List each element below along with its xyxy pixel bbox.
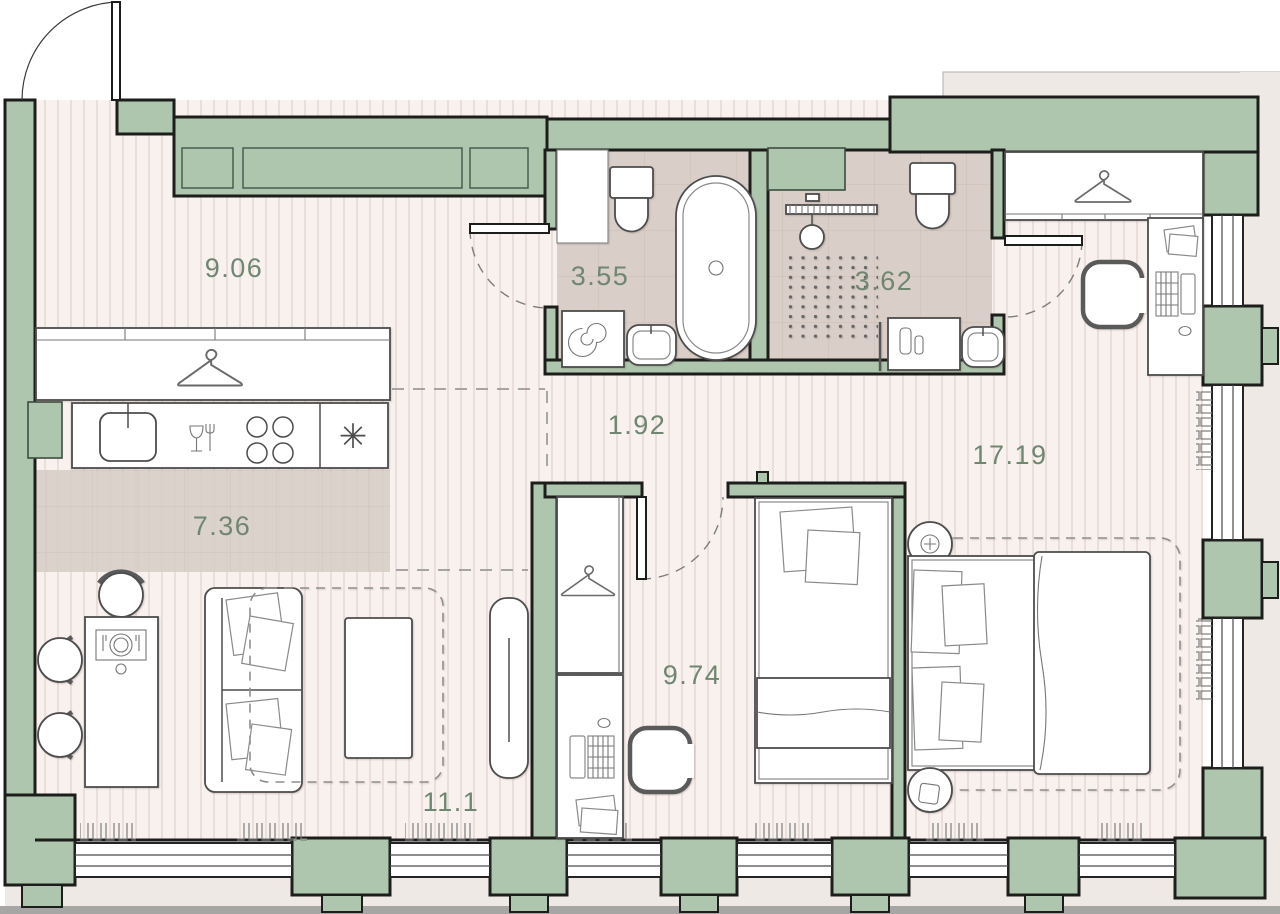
wall-bathrooms-top — [547, 119, 890, 150]
bathtub — [676, 176, 756, 360]
sofa — [205, 588, 302, 792]
pilaster-bottom-2 — [490, 838, 567, 895]
pilaster-right-2-tab — [1262, 562, 1278, 598]
pillow — [805, 530, 860, 585]
wall-entry-corner — [117, 100, 174, 134]
console-shelf — [490, 598, 528, 778]
desk — [557, 675, 623, 838]
toilet — [610, 167, 653, 232]
dining-chair — [38, 713, 82, 757]
radiator-vertical — [1196, 390, 1212, 470]
washing-machine — [562, 311, 624, 367]
window-bottom-6 — [1079, 843, 1175, 877]
papers-icon — [580, 808, 618, 834]
radiator — [752, 823, 814, 841]
single-bed — [755, 498, 892, 783]
pilaster-right-1-tab — [1262, 328, 1278, 364]
pilaster-bottom-5 — [1008, 838, 1079, 895]
window-bottom-3 — [567, 843, 661, 877]
wall-living-bedroom — [532, 483, 557, 838]
wall-bedroom2-top-left — [545, 483, 642, 497]
exterior-top-right — [943, 72, 1280, 99]
double-bed — [908, 552, 1150, 774]
entry-closet — [36, 328, 390, 400]
room-label-bedroom-second: 9.74 — [663, 660, 722, 690]
pillow — [939, 682, 984, 742]
pilaster-right-2 — [1203, 540, 1262, 618]
wall-cabinet-2 — [243, 148, 462, 188]
wall-bedrooms-divider — [892, 497, 905, 838]
room-label-hallway: 1.92 — [608, 410, 667, 440]
wall-tab — [757, 472, 768, 483]
desk-chair — [630, 728, 694, 792]
entry-door — [22, 2, 120, 100]
wall-right-bottom-corner — [1203, 768, 1262, 846]
wall-top-right — [890, 97, 1258, 152]
pilaster-b3-tab — [680, 895, 718, 912]
papers-icon — [1168, 234, 1198, 256]
pilaster-bl-tab — [22, 885, 62, 907]
wall-cabinet-3 — [470, 148, 528, 188]
room-label-kitchen: 9.06 — [205, 253, 264, 283]
wall-shower-right-a — [992, 150, 1004, 238]
floor-plan: ✳ — [0, 0, 1280, 914]
laptop-icon — [570, 736, 614, 778]
shower-sink — [962, 327, 1004, 367]
pilaster-bottom-4 — [832, 838, 909, 895]
pilaster-bottom-right-corner — [1175, 838, 1265, 898]
bathroom-sink — [627, 325, 676, 365]
window-bottom-1 — [75, 843, 292, 877]
duct-kitchen — [28, 402, 62, 458]
window-right-3 — [1212, 618, 1243, 768]
desk-chair — [1083, 262, 1146, 327]
pilaster-b2-tab — [510, 895, 548, 912]
pilaster-b5-tab — [1025, 895, 1063, 912]
dining-chair — [38, 638, 82, 682]
blanket — [757, 678, 890, 748]
wall-cabinet-1 — [182, 148, 233, 188]
bathroom-cabinet — [557, 150, 608, 243]
wardrobe — [557, 497, 623, 673]
room-label-bathroom: 3.55 — [571, 261, 630, 291]
ground-line — [0, 906, 1280, 914]
radiator — [237, 823, 307, 841]
toilet — [910, 163, 955, 229]
kitchen-furniture: ✳ — [36, 328, 390, 468]
desk — [1148, 218, 1203, 375]
pilaster-bottom-3 — [661, 838, 737, 895]
window-bottom-4 — [737, 843, 832, 877]
kitchen-counter: ✳ — [72, 403, 388, 468]
blanket — [1034, 552, 1150, 774]
pilaster-right-1 — [1203, 306, 1262, 385]
wall-bathroom-left-a — [545, 150, 557, 229]
wardrobe — [1005, 152, 1203, 220]
nightstand-bottom — [908, 768, 952, 812]
sofa-pillow — [246, 724, 292, 775]
window-bottom-2 — [390, 843, 490, 877]
coffee-table — [345, 618, 412, 758]
window-bottom-5 — [909, 843, 1008, 877]
radiator — [80, 823, 136, 841]
duct-shaft — [768, 148, 845, 190]
pilaster-b1-tab — [322, 895, 362, 912]
wall-bedroom2-top-right — [728, 483, 905, 497]
room-label-living: 11.1 — [423, 787, 480, 817]
shower-door-leaf — [1005, 236, 1082, 245]
wall-right-corner — [1203, 152, 1258, 215]
wall-left — [5, 100, 35, 845]
room-label-kitchen-zone: 7.36 — [193, 511, 252, 541]
room-label-bedroom-main: 17.19 — [972, 440, 1047, 470]
room-label-shower: 3.62 — [855, 266, 914, 296]
dining-chair — [99, 573, 143, 617]
window-right-2 — [1212, 385, 1243, 540]
fridge-icon: ✳ — [339, 418, 368, 456]
pilaster-bottom-1 — [292, 838, 390, 895]
laptop-icon — [1156, 272, 1195, 316]
bathroom-door-leaf — [470, 224, 549, 233]
radiator — [926, 823, 984, 841]
radiator — [1098, 823, 1142, 841]
toiletries-cabinet — [888, 318, 960, 370]
radiator-vertical — [1196, 618, 1212, 700]
window-right-1 — [1212, 215, 1243, 306]
pilaster-b4-tab — [851, 895, 889, 912]
entry-door-leaf — [112, 2, 120, 100]
radiator — [405, 823, 477, 841]
bedroom-door-leaf — [637, 497, 646, 579]
pillow — [942, 584, 987, 646]
